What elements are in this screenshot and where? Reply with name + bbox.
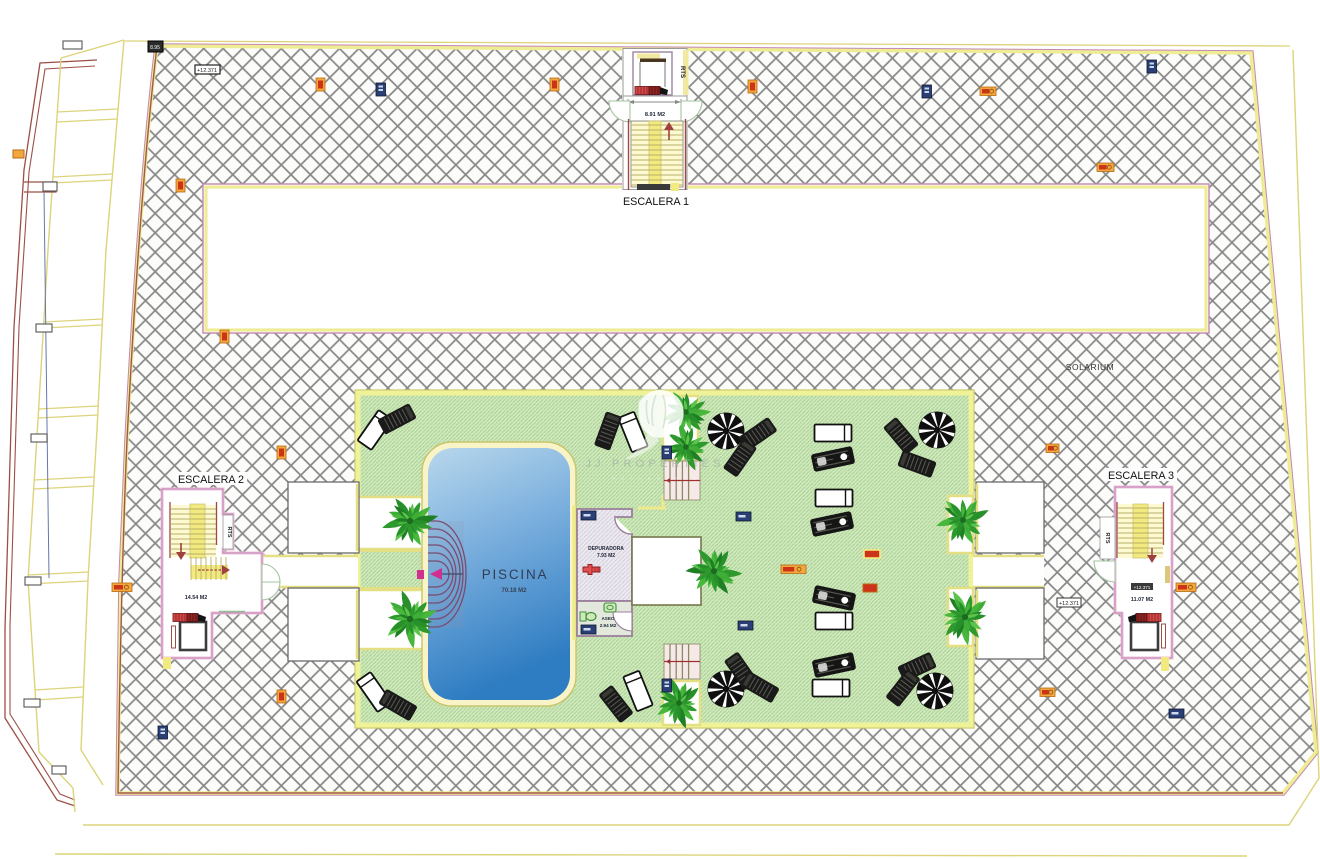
svg-text:7.93 M2: 7.93 M2 xyxy=(597,553,615,559)
svg-text:2.94 M2: 2.94 M2 xyxy=(600,623,617,628)
svg-text:R E A L E S T A T E: R E A L E S T A T E xyxy=(612,476,699,481)
svg-text:11.07 M2: 11.07 M2 xyxy=(1131,597,1153,603)
svg-text:RTS: RTS xyxy=(226,527,232,538)
svg-text:ESCALERA 2: ESCALERA 2 xyxy=(178,474,244,486)
svg-text:14.54 M2: 14.54 M2 xyxy=(185,595,207,601)
svg-text:DEPURADORA: DEPURADORA xyxy=(588,546,624,552)
svg-text:8.95: 8.95 xyxy=(150,45,160,51)
svg-text:RTS: RTS xyxy=(1104,533,1110,544)
svg-text:8.91 M2: 8.91 M2 xyxy=(645,112,665,118)
svg-text:+12.371: +12.371 xyxy=(1059,601,1079,607)
svg-text:SOLARIUM: SOLARIUM xyxy=(1066,362,1114,372)
svg-text:+12.371: +12.371 xyxy=(1134,585,1151,590)
svg-text:JJ PROPERTIES: JJ PROPERTIES xyxy=(585,458,724,470)
svg-text:70.18 M2: 70.18 M2 xyxy=(501,588,527,594)
svg-text:RTS: RTS xyxy=(679,66,685,78)
svg-text:ASEO: ASEO xyxy=(601,616,614,621)
svg-text:+12.371: +12.371 xyxy=(197,68,217,74)
svg-text:ESCALERA 3: ESCALERA 3 xyxy=(1108,470,1174,482)
svg-text:PISCINA: PISCINA xyxy=(482,567,549,582)
svg-text:ESCALERA 1: ESCALERA 1 xyxy=(623,196,689,208)
